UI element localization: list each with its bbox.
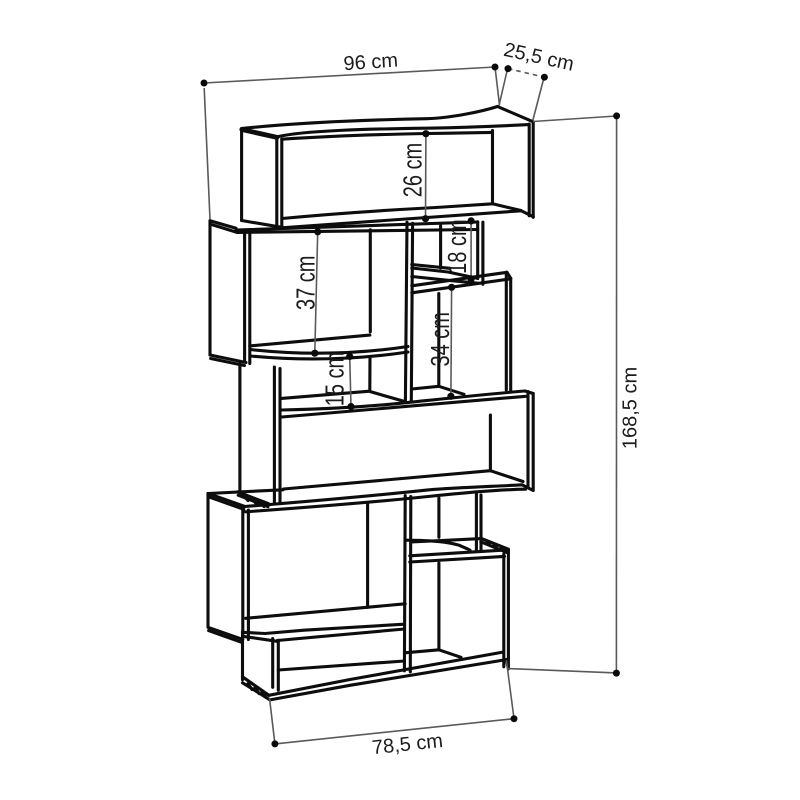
svg-text:18 cm: 18 cm — [443, 219, 472, 273]
svg-text:25,5 cm: 25,5 cm — [502, 39, 576, 76]
svg-text:168,5 cm: 168,5 cm — [620, 367, 642, 449]
svg-text:78,5 cm: 78,5 cm — [371, 730, 444, 759]
svg-text:37 cm: 37 cm — [291, 256, 320, 310]
svg-text:15 cm: 15 cm — [320, 352, 349, 406]
svg-text:34 cm: 34 cm — [425, 312, 454, 366]
svg-text:26 cm: 26 cm — [398, 143, 427, 197]
svg-text:96 cm: 96 cm — [343, 50, 399, 76]
